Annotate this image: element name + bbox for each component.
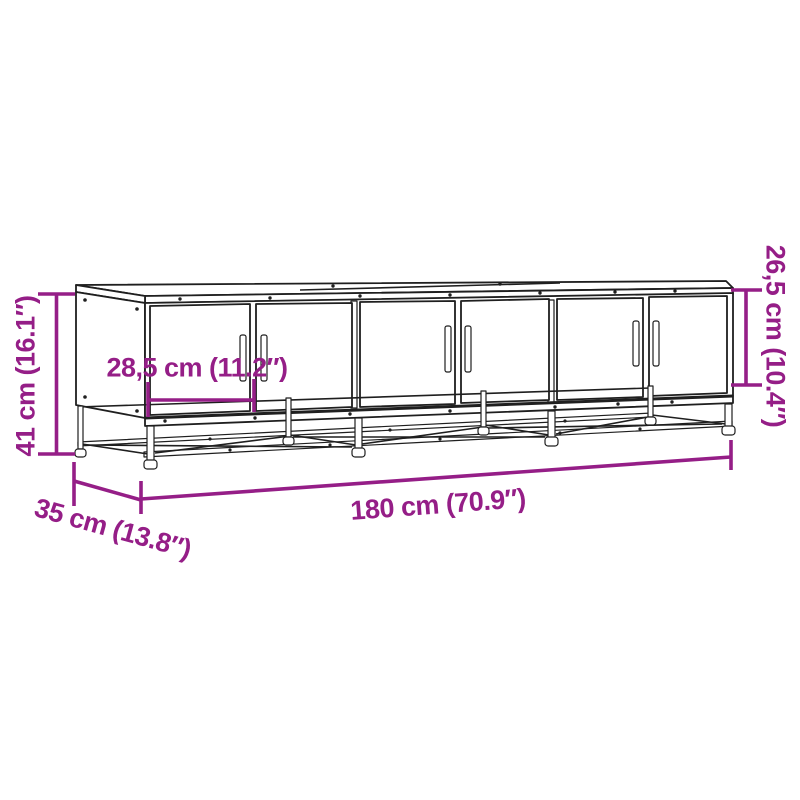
- dimension-line: [74, 481, 141, 500]
- dimension-door-height: 26,5 cm (10.4″): [731, 245, 791, 428]
- dimension-overall-depth: 35 cm (13.8″): [31, 462, 194, 564]
- dimension-label-door-height: 26,5 cm (10.4″): [761, 245, 791, 428]
- handle-icon: [465, 326, 471, 372]
- dimension-label-overall-width: 180 cm (70.9″): [349, 483, 526, 526]
- door-4: [461, 299, 549, 403]
- dimension-diagram-page: 41 cm (16.1″) 28,5 cm (11.2″) 26,5 cm (1…: [0, 0, 800, 800]
- dimension-label-overall-height: 41 cm (16.1″): [10, 295, 40, 456]
- door-6: [649, 296, 727, 396]
- handle-icon: [653, 321, 659, 366]
- handle-icon: [633, 321, 639, 366]
- dimension-overall-height: 41 cm (16.1″): [10, 294, 75, 457]
- product-dimension-diagram: 41 cm (16.1″) 28,5 cm (11.2″) 26,5 cm (1…: [0, 0, 800, 800]
- dimension-label-overall-depth: 35 cm (13.8″): [31, 492, 194, 564]
- door-5: [557, 298, 643, 400]
- dimension-label-door-width: 28,5 cm (11.2″): [106, 352, 287, 382]
- handle-icon: [445, 326, 451, 372]
- door-3: [360, 301, 455, 407]
